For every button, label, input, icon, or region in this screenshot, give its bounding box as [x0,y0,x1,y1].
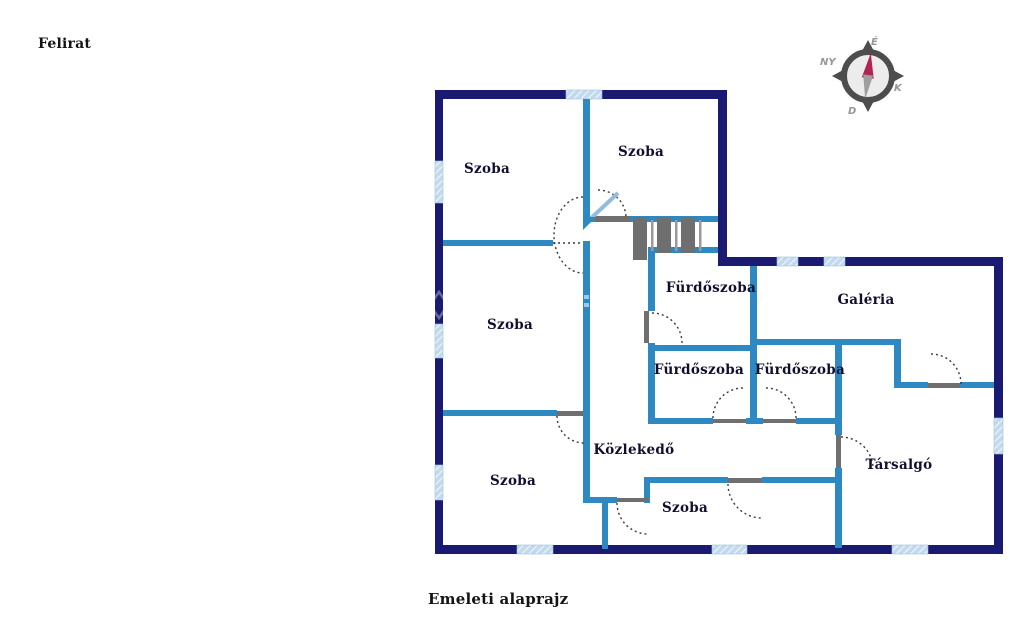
room-label-kozlekedo: Közlekedő [594,442,675,458]
caption-floor-title: Emeleti alaprajz [428,590,568,608]
caption-felirat: Felirat [38,36,91,52]
stairs [633,217,702,260]
compass-west-label: NY [820,57,836,68]
room-label-furdoszoba-mid-left: Fürdőszoba [654,362,744,378]
compass-north-label: É [871,37,878,48]
room-label-furdoszoba-mid-right: Fürdőszoba [755,362,845,378]
compass-east-label: K [894,83,902,94]
floor-plan-page: { "captions": { "top_left": "Felirat", "… [0,0,1024,638]
room-label-galeria: Galéria [837,292,894,308]
room-label-furdoszoba-top: Fürdőszoba [666,280,756,296]
room-label-szoba-top-right: Szoba [618,144,664,160]
room-label-szoba-mid-left: Szoba [487,317,533,333]
room-label-szoba-bottom-left: Szoba [490,473,536,489]
watermark-icon [430,292,589,318]
compass-south-label: D [848,106,856,117]
compass-rose-icon [832,40,904,112]
room-label-tarsalgo: Társalgó [866,457,933,473]
room-label-szoba-top-left: Szoba [464,161,510,177]
room-label-szoba-bottom-mid: Szoba [662,500,708,516]
